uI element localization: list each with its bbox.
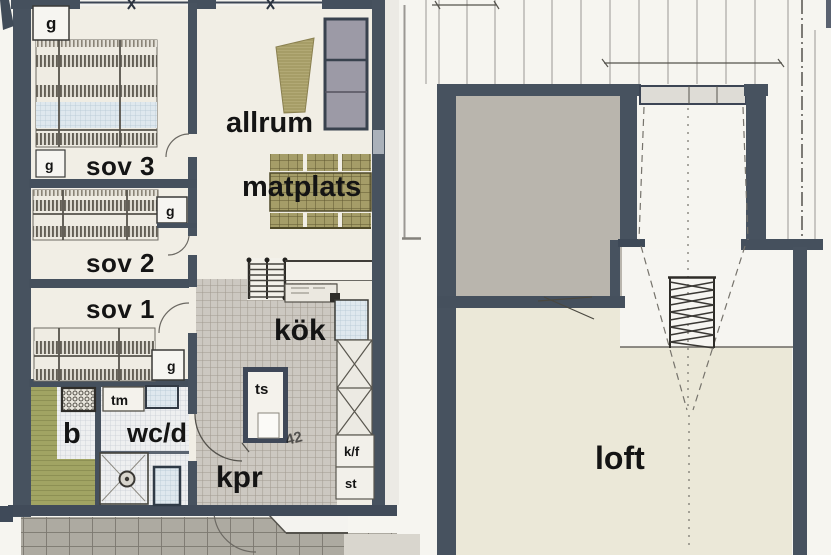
svg-text:sov 2: sov 2 [86,248,155,278]
svg-text:g: g [166,203,175,219]
svg-text:g: g [167,358,176,374]
svg-text:matplats: matplats [242,171,361,203]
svg-text:k/f: k/f [344,444,360,459]
svg-text:tm: tm [111,392,128,408]
svg-text:st: st [345,476,357,491]
svg-text:b: b [63,418,81,450]
svg-text:kpr: kpr [216,461,263,494]
svg-text:allrum: allrum [226,107,313,139]
svg-text:ts: ts [255,381,268,398]
svg-text:kök: kök [274,314,326,347]
svg-text:sov 3: sov 3 [86,151,155,181]
svg-text:wc/d: wc/d [126,418,187,448]
svg-text:loft: loft [595,440,645,476]
svg-text:sov 1: sov 1 [86,294,155,324]
svg-text:g: g [46,14,56,33]
svg-text:g: g [45,157,54,173]
